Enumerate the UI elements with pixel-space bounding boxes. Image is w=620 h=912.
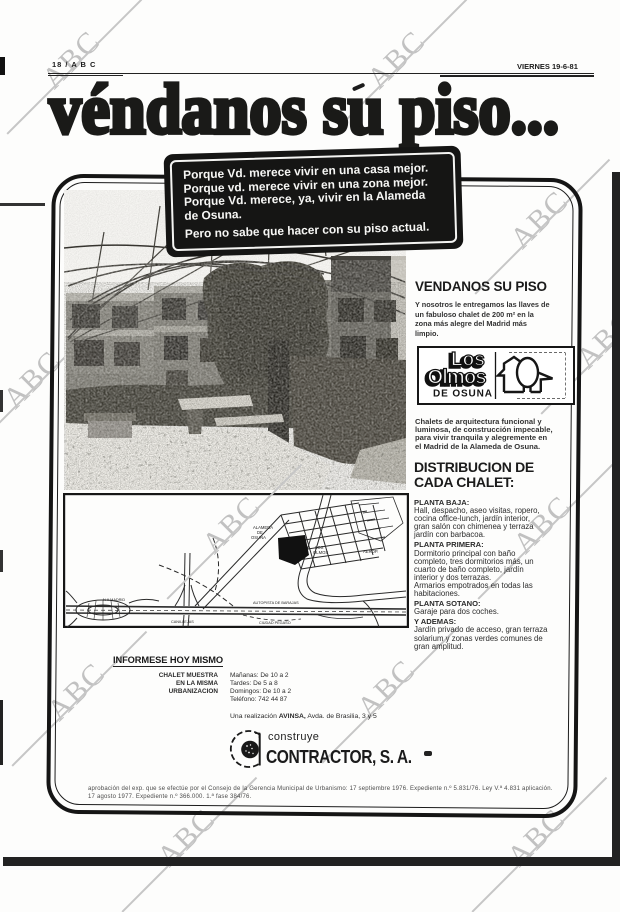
svg-text:OLMOS: OLMOS	[313, 550, 328, 555]
svg-text:véndanos su piso...: véndanos su piso...	[49, 72, 559, 149]
svg-text:DE OSUNA: DE OSUNA	[433, 389, 492, 400]
svg-text:AUTOPISTA DE BARAJAS: AUTOPISTA DE BARAJAS	[253, 601, 299, 605]
svg-text:OSUNA: OSUNA	[251, 535, 266, 540]
svg-text:AEROP.: AEROP.	[363, 549, 378, 554]
svg-text:CIUDAD PEGASO: CIUDAD PEGASO	[259, 621, 291, 625]
svg-text:CANILLEJAS: CANILLEJAS	[171, 620, 194, 624]
svg-text:N-II MADRID: N-II MADRID	[103, 598, 125, 602]
svg-text:Olmos: Olmos	[428, 367, 487, 389]
